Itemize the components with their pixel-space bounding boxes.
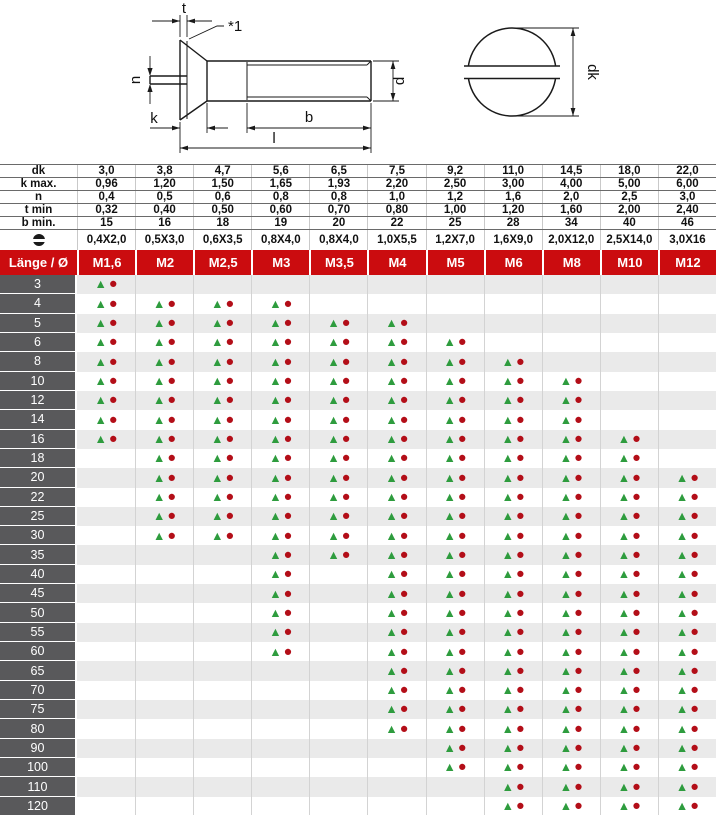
availability-cell: ▲● bbox=[367, 526, 425, 545]
spec-value: 3,0X16 bbox=[658, 230, 716, 250]
availability-cell: ▲● bbox=[367, 430, 425, 449]
availability-cell: ▲● bbox=[309, 352, 367, 371]
circle-marker: ● bbox=[342, 413, 351, 428]
spec-row-label bbox=[0, 230, 77, 250]
spec-value: 1,93 bbox=[309, 178, 367, 190]
availability-cell bbox=[77, 642, 135, 661]
triangle-marker: ▲ bbox=[444, 414, 456, 427]
triangle-marker: ▲ bbox=[560, 530, 572, 543]
triangle-marker: ▲ bbox=[153, 414, 165, 427]
availability-cell: ▲● bbox=[193, 507, 251, 526]
table-row-length-65: 65▲●▲●▲●▲●▲●▲● bbox=[0, 661, 716, 680]
triangle-marker: ▲ bbox=[618, 549, 630, 562]
spec-value: 3,00 bbox=[484, 178, 542, 190]
triangle-marker: ▲ bbox=[560, 549, 572, 562]
triangle-marker: ▲ bbox=[676, 703, 688, 716]
circle-marker: ● bbox=[690, 529, 699, 544]
triangle-marker: ▲ bbox=[560, 626, 572, 639]
spec-value: 7,5 bbox=[367, 165, 425, 177]
availability-cell bbox=[193, 797, 251, 815]
triangle-marker: ▲ bbox=[385, 646, 397, 659]
triangle-marker: ▲ bbox=[618, 646, 630, 659]
availability-cell bbox=[77, 488, 135, 507]
table-row-length-22: 22▲●▲●▲●▲●▲●▲●▲●▲●▲●▲● bbox=[0, 488, 716, 507]
spec-value: 1,2X7,0 bbox=[426, 230, 484, 250]
availability-cell: ▲● bbox=[367, 314, 425, 333]
table-row-length-25: 25▲●▲●▲●▲●▲●▲●▲●▲●▲●▲● bbox=[0, 507, 716, 526]
circle-marker: ● bbox=[690, 664, 699, 679]
circle-marker: ● bbox=[226, 529, 235, 544]
availability-cell: ▲● bbox=[251, 410, 309, 429]
circle-marker: ● bbox=[632, 587, 641, 602]
triangle-marker: ▲ bbox=[676, 607, 688, 620]
circle-marker: ● bbox=[109, 335, 118, 350]
availability-cell: ▲● bbox=[600, 797, 658, 815]
spec-value: 1,20 bbox=[135, 178, 193, 190]
triangle-marker: ▲ bbox=[502, 626, 514, 639]
availability-cell bbox=[309, 603, 367, 622]
triangle-marker: ▲ bbox=[444, 684, 456, 697]
length-label: 70 bbox=[0, 681, 77, 700]
availability-cell bbox=[193, 584, 251, 603]
triangle-marker: ▲ bbox=[211, 452, 223, 465]
circle-marker: ● bbox=[167, 374, 176, 389]
circle-marker: ● bbox=[690, 760, 699, 775]
circle-marker: ● bbox=[574, 722, 583, 737]
circle-marker: ● bbox=[400, 393, 409, 408]
triangle-marker: ▲ bbox=[94, 298, 106, 311]
circle-marker: ● bbox=[632, 645, 641, 660]
circle-marker: ● bbox=[458, 741, 467, 756]
triangle-marker: ▲ bbox=[385, 510, 397, 523]
availability-cell: ▲● bbox=[658, 623, 716, 642]
availability-cell: ▲● bbox=[484, 623, 542, 642]
circle-marker: ● bbox=[167, 529, 176, 544]
triangle-marker: ▲ bbox=[502, 452, 514, 465]
spec-value: 19 bbox=[251, 217, 309, 229]
spec-value: 2,50 bbox=[426, 178, 484, 190]
availability-cell bbox=[600, 333, 658, 352]
triangle-marker: ▲ bbox=[269, 317, 281, 330]
triangle-marker: ▲ bbox=[618, 800, 630, 813]
availability-cell: ▲● bbox=[309, 468, 367, 487]
circle-marker: ● bbox=[516, 548, 525, 563]
availability-cell bbox=[135, 797, 193, 815]
availability-cell: ▲● bbox=[658, 681, 716, 700]
availability-cell: ▲● bbox=[426, 739, 484, 758]
circle-marker: ● bbox=[342, 316, 351, 331]
circle-marker: ● bbox=[632, 625, 641, 640]
spec-value: 15 bbox=[77, 217, 135, 229]
triangle-marker: ▲ bbox=[618, 588, 630, 601]
length-label: 35 bbox=[0, 545, 77, 564]
triangle-marker: ▲ bbox=[618, 568, 630, 581]
circle-marker: ● bbox=[400, 355, 409, 370]
triangle-marker: ▲ bbox=[269, 433, 281, 446]
triangle-marker: ▲ bbox=[153, 298, 165, 311]
triangle-marker: ▲ bbox=[502, 742, 514, 755]
triangle-marker: ▲ bbox=[560, 375, 572, 388]
availability-cell: ▲● bbox=[542, 507, 600, 526]
circle-marker: ● bbox=[458, 413, 467, 428]
availability-cell bbox=[658, 294, 716, 313]
circle-marker: ● bbox=[167, 316, 176, 331]
triangle-marker: ▲ bbox=[444, 607, 456, 620]
availability-cell: ▲● bbox=[658, 739, 716, 758]
triangle-marker: ▲ bbox=[269, 491, 281, 504]
spec-value: 1,00 bbox=[426, 204, 484, 216]
circle-marker: ● bbox=[400, 451, 409, 466]
size-header-row: Länge / ØM1,6M2M2,5M3M3,5M4M5M6M8M10M12 bbox=[0, 250, 716, 275]
availability-cell: ▲● bbox=[542, 642, 600, 661]
circle-marker: ● bbox=[400, 316, 409, 331]
availability-cell: ▲● bbox=[658, 565, 716, 584]
triangle-marker: ▲ bbox=[211, 356, 223, 369]
triangle-marker: ▲ bbox=[94, 356, 106, 369]
availability-cell: ▲● bbox=[600, 468, 658, 487]
availability-cell bbox=[309, 700, 367, 719]
spec-value: 0,50 bbox=[193, 204, 251, 216]
circle-marker: ● bbox=[574, 799, 583, 814]
circle-marker: ● bbox=[342, 471, 351, 486]
availability-cell bbox=[77, 700, 135, 719]
length-label: 65 bbox=[0, 661, 77, 680]
dim-label-dk: dk bbox=[584, 64, 601, 80]
circle-marker: ● bbox=[516, 606, 525, 621]
circle-marker: ● bbox=[284, 548, 293, 563]
circle-marker: ● bbox=[632, 760, 641, 775]
circle-marker: ● bbox=[400, 509, 409, 524]
availability-cell: ▲● bbox=[367, 545, 425, 564]
availability-cell: ▲● bbox=[600, 545, 658, 564]
circle-marker: ● bbox=[516, 451, 525, 466]
spec-row: t min0,320,400,500,600,700,801,001,201,6… bbox=[0, 204, 716, 217]
length-label: 30 bbox=[0, 526, 77, 545]
availability-cell bbox=[484, 333, 542, 352]
circle-marker: ● bbox=[109, 393, 118, 408]
column-header-M6: M6 bbox=[484, 250, 542, 275]
circle-marker: ● bbox=[226, 471, 235, 486]
availability-cell: ▲● bbox=[77, 430, 135, 449]
availability-cell: ▲● bbox=[658, 468, 716, 487]
availability-cell bbox=[542, 352, 600, 371]
triangle-marker: ▲ bbox=[269, 414, 281, 427]
triangle-marker: ▲ bbox=[560, 684, 572, 697]
triangle-marker: ▲ bbox=[676, 626, 688, 639]
availability-cell bbox=[77, 526, 135, 545]
circle-marker: ● bbox=[109, 316, 118, 331]
circle-marker: ● bbox=[574, 567, 583, 582]
availability-cell bbox=[77, 545, 135, 564]
slotted-head-icon bbox=[33, 234, 45, 246]
availability-cell bbox=[193, 603, 251, 622]
triangle-marker: ▲ bbox=[676, 742, 688, 755]
availability-cell bbox=[135, 681, 193, 700]
availability-cell: ▲● bbox=[251, 642, 309, 661]
circle-marker: ● bbox=[516, 509, 525, 524]
triangle-marker: ▲ bbox=[211, 491, 223, 504]
availability-cell bbox=[542, 333, 600, 352]
circle-marker: ● bbox=[690, 471, 699, 486]
availability-cell: ▲● bbox=[367, 700, 425, 719]
circle-marker: ● bbox=[284, 374, 293, 389]
circle-marker: ● bbox=[284, 297, 293, 312]
availability-cell bbox=[658, 430, 716, 449]
circle-marker: ● bbox=[226, 509, 235, 524]
triangle-marker: ▲ bbox=[444, 356, 456, 369]
triangle-marker: ▲ bbox=[269, 472, 281, 485]
availability-cell: ▲● bbox=[484, 352, 542, 371]
availability-cell: ▲● bbox=[542, 661, 600, 680]
triangle-marker: ▲ bbox=[560, 646, 572, 659]
availability-cell: ▲● bbox=[251, 391, 309, 410]
circle-marker: ● bbox=[574, 451, 583, 466]
availability-cell: ▲● bbox=[426, 642, 484, 661]
triangle-marker: ▲ bbox=[560, 588, 572, 601]
table-row-length-50: 50▲●▲●▲●▲●▲●▲●▲● bbox=[0, 603, 716, 622]
triangle-marker: ▲ bbox=[502, 665, 514, 678]
circle-marker: ● bbox=[516, 625, 525, 640]
triangle-marker: ▲ bbox=[444, 626, 456, 639]
circle-marker: ● bbox=[226, 374, 235, 389]
triangle-marker: ▲ bbox=[618, 491, 630, 504]
availability-cell bbox=[77, 623, 135, 642]
availability-cell bbox=[77, 661, 135, 680]
table-row-length-40: 40▲●▲●▲●▲●▲●▲●▲● bbox=[0, 565, 716, 584]
availability-cell: ▲● bbox=[658, 526, 716, 545]
availability-cell: ▲● bbox=[367, 468, 425, 487]
availability-cell: ▲● bbox=[251, 545, 309, 564]
circle-marker: ● bbox=[400, 432, 409, 447]
availability-cell bbox=[135, 739, 193, 758]
availability-cell: ▲● bbox=[193, 468, 251, 487]
availability-cell: ▲● bbox=[77, 352, 135, 371]
triangle-marker: ▲ bbox=[676, 568, 688, 581]
triangle-marker: ▲ bbox=[327, 356, 339, 369]
availability-cell: ▲● bbox=[251, 584, 309, 603]
availability-cell bbox=[600, 391, 658, 410]
availability-cell bbox=[135, 777, 193, 796]
circle-marker: ● bbox=[226, 355, 235, 370]
triangle-marker: ▲ bbox=[676, 646, 688, 659]
availability-cell bbox=[135, 275, 193, 294]
availability-cell: ▲● bbox=[367, 410, 425, 429]
circle-marker: ● bbox=[574, 471, 583, 486]
availability-cell: ▲● bbox=[658, 777, 716, 796]
triangle-marker: ▲ bbox=[269, 356, 281, 369]
triangle-marker: ▲ bbox=[153, 433, 165, 446]
circle-marker: ● bbox=[574, 760, 583, 775]
availability-cell: ▲● bbox=[367, 372, 425, 391]
availability-cell: ▲● bbox=[658, 545, 716, 564]
table-row-length-16: 16▲●▲●▲●▲●▲●▲●▲●▲●▲●▲● bbox=[0, 430, 716, 449]
availability-cell: ▲● bbox=[135, 333, 193, 352]
dim-label-t: t bbox=[182, 0, 187, 17]
availability-cell: ▲● bbox=[484, 372, 542, 391]
availability-cell: ▲● bbox=[484, 430, 542, 449]
availability-cell: ▲● bbox=[542, 603, 600, 622]
availability-cell bbox=[77, 584, 135, 603]
availability-cell: ▲● bbox=[484, 449, 542, 468]
availability-cell bbox=[135, 584, 193, 603]
triangle-marker: ▲ bbox=[560, 761, 572, 774]
availability-cell: ▲● bbox=[367, 681, 425, 700]
circle-marker: ● bbox=[574, 625, 583, 640]
triangle-marker: ▲ bbox=[153, 452, 165, 465]
circle-marker: ● bbox=[284, 432, 293, 447]
availability-cell: ▲● bbox=[484, 488, 542, 507]
spec-value: 0,4 bbox=[77, 191, 135, 203]
triangle-marker: ▲ bbox=[385, 433, 397, 446]
circle-marker: ● bbox=[167, 432, 176, 447]
circle-marker: ● bbox=[400, 490, 409, 505]
availability-cell: ▲● bbox=[309, 372, 367, 391]
triangle-marker: ▲ bbox=[153, 510, 165, 523]
circle-marker: ● bbox=[690, 741, 699, 756]
availability-cell bbox=[484, 294, 542, 313]
spec-row-label: n bbox=[0, 191, 77, 203]
availability-cell: ▲● bbox=[77, 275, 135, 294]
availability-cell bbox=[600, 372, 658, 391]
table-row-length-75: 75▲●▲●▲●▲●▲●▲● bbox=[0, 700, 716, 719]
availability-cell: ▲● bbox=[251, 372, 309, 391]
availability-cell bbox=[77, 797, 135, 815]
availability-cell: ▲● bbox=[135, 391, 193, 410]
spec-value: 0,8 bbox=[309, 191, 367, 203]
triangle-marker: ▲ bbox=[444, 394, 456, 407]
availability-cell: ▲● bbox=[600, 623, 658, 642]
spec-value: 1,6 bbox=[484, 191, 542, 203]
column-header-M8: M8 bbox=[542, 250, 600, 275]
screw-drawing-svg: t *1 n k b l d dk bbox=[0, 0, 716, 164]
availability-cell: ▲● bbox=[367, 488, 425, 507]
availability-cell: ▲● bbox=[542, 681, 600, 700]
spec-value: 11,0 bbox=[484, 165, 542, 177]
availability-cell bbox=[77, 449, 135, 468]
length-label: 120 bbox=[0, 797, 77, 815]
column-header-M10: M10 bbox=[600, 250, 658, 275]
triangle-marker: ▲ bbox=[385, 665, 397, 678]
column-header-M4: M4 bbox=[367, 250, 425, 275]
length-label: 55 bbox=[0, 623, 77, 642]
table-row-length-12: 12▲●▲●▲●▲●▲●▲●▲●▲●▲● bbox=[0, 391, 716, 410]
length-label: 75 bbox=[0, 700, 77, 719]
triangle-marker: ▲ bbox=[94, 375, 106, 388]
availability-cell bbox=[251, 777, 309, 796]
triangle-marker: ▲ bbox=[444, 646, 456, 659]
spec-row-label: k max. bbox=[0, 178, 77, 190]
circle-marker: ● bbox=[690, 587, 699, 602]
availability-cell: ▲● bbox=[484, 758, 542, 777]
circle-marker: ● bbox=[400, 683, 409, 698]
circle-marker: ● bbox=[226, 490, 235, 505]
table-row-length-100: 100▲●▲●▲●▲●▲● bbox=[0, 758, 716, 777]
triangle-marker: ▲ bbox=[676, 761, 688, 774]
triangle-marker: ▲ bbox=[385, 375, 397, 388]
availability-cell: ▲● bbox=[600, 488, 658, 507]
circle-marker: ● bbox=[516, 780, 525, 795]
triangle-marker: ▲ bbox=[385, 588, 397, 601]
circle-marker: ● bbox=[400, 645, 409, 660]
triangle-marker: ▲ bbox=[618, 472, 630, 485]
spec-value: 2,5X14,0 bbox=[600, 230, 658, 250]
triangle-marker: ▲ bbox=[560, 433, 572, 446]
spec-value: 1,0X5,5 bbox=[367, 230, 425, 250]
circle-marker: ● bbox=[690, 645, 699, 660]
availability-cell bbox=[77, 739, 135, 758]
circle-marker: ● bbox=[284, 625, 293, 640]
circle-marker: ● bbox=[574, 432, 583, 447]
circle-marker: ● bbox=[632, 606, 641, 621]
circle-marker: ● bbox=[574, 741, 583, 756]
availability-cell: ▲● bbox=[135, 468, 193, 487]
availability-cell: ▲● bbox=[542, 584, 600, 603]
circle-marker: ● bbox=[516, 741, 525, 756]
availability-cell: ▲● bbox=[135, 294, 193, 313]
circle-marker: ● bbox=[458, 548, 467, 563]
column-header-M3-5: M3,5 bbox=[309, 250, 367, 275]
circle-marker: ● bbox=[458, 393, 467, 408]
triangle-marker: ▲ bbox=[327, 375, 339, 388]
availability-cell bbox=[658, 314, 716, 333]
circle-marker: ● bbox=[574, 645, 583, 660]
availability-cell bbox=[309, 642, 367, 661]
triangle-marker: ▲ bbox=[676, 723, 688, 736]
length-label: 22 bbox=[0, 488, 77, 507]
spec-value: 16 bbox=[135, 217, 193, 229]
availability-cell: ▲● bbox=[484, 410, 542, 429]
triangle-marker: ▲ bbox=[560, 472, 572, 485]
circle-marker: ● bbox=[400, 702, 409, 717]
length-label: 25 bbox=[0, 507, 77, 526]
availability-cell: ▲● bbox=[251, 507, 309, 526]
triangle-marker: ▲ bbox=[618, 781, 630, 794]
triangle-marker: ▲ bbox=[502, 761, 514, 774]
spec-value: 2,40 bbox=[658, 204, 716, 216]
length-label: 50 bbox=[0, 603, 77, 622]
availability-cell: ▲● bbox=[484, 603, 542, 622]
circle-marker: ● bbox=[574, 509, 583, 524]
circle-marker: ● bbox=[632, 780, 641, 795]
availability-cell: ▲● bbox=[193, 526, 251, 545]
availability-cell: ▲● bbox=[542, 545, 600, 564]
availability-cell: ▲● bbox=[193, 372, 251, 391]
spec-value: 1,50 bbox=[193, 178, 251, 190]
circle-marker: ● bbox=[516, 760, 525, 775]
availability-cell: ▲● bbox=[600, 430, 658, 449]
length-label: 18 bbox=[0, 449, 77, 468]
availability-cell: ▲● bbox=[600, 642, 658, 661]
availability-cell: ▲● bbox=[542, 372, 600, 391]
availability-cell bbox=[193, 565, 251, 584]
triangle-marker: ▲ bbox=[153, 472, 165, 485]
availability-cell: ▲● bbox=[193, 314, 251, 333]
availability-cell: ▲● bbox=[426, 488, 484, 507]
availability-cell: ▲● bbox=[135, 410, 193, 429]
availability-cell bbox=[426, 797, 484, 815]
spec-value: 18,0 bbox=[600, 165, 658, 177]
spec-value: 0,40 bbox=[135, 204, 193, 216]
table-row-length-110: 110▲●▲●▲●▲● bbox=[0, 777, 716, 796]
circle-marker: ● bbox=[516, 471, 525, 486]
availability-cell: ▲● bbox=[251, 314, 309, 333]
circle-marker: ● bbox=[516, 529, 525, 544]
circle-marker: ● bbox=[284, 413, 293, 428]
availability-cell bbox=[135, 603, 193, 622]
triangle-marker: ▲ bbox=[618, 452, 630, 465]
availability-cell: ▲● bbox=[309, 410, 367, 429]
availability-cell: ▲● bbox=[426, 372, 484, 391]
